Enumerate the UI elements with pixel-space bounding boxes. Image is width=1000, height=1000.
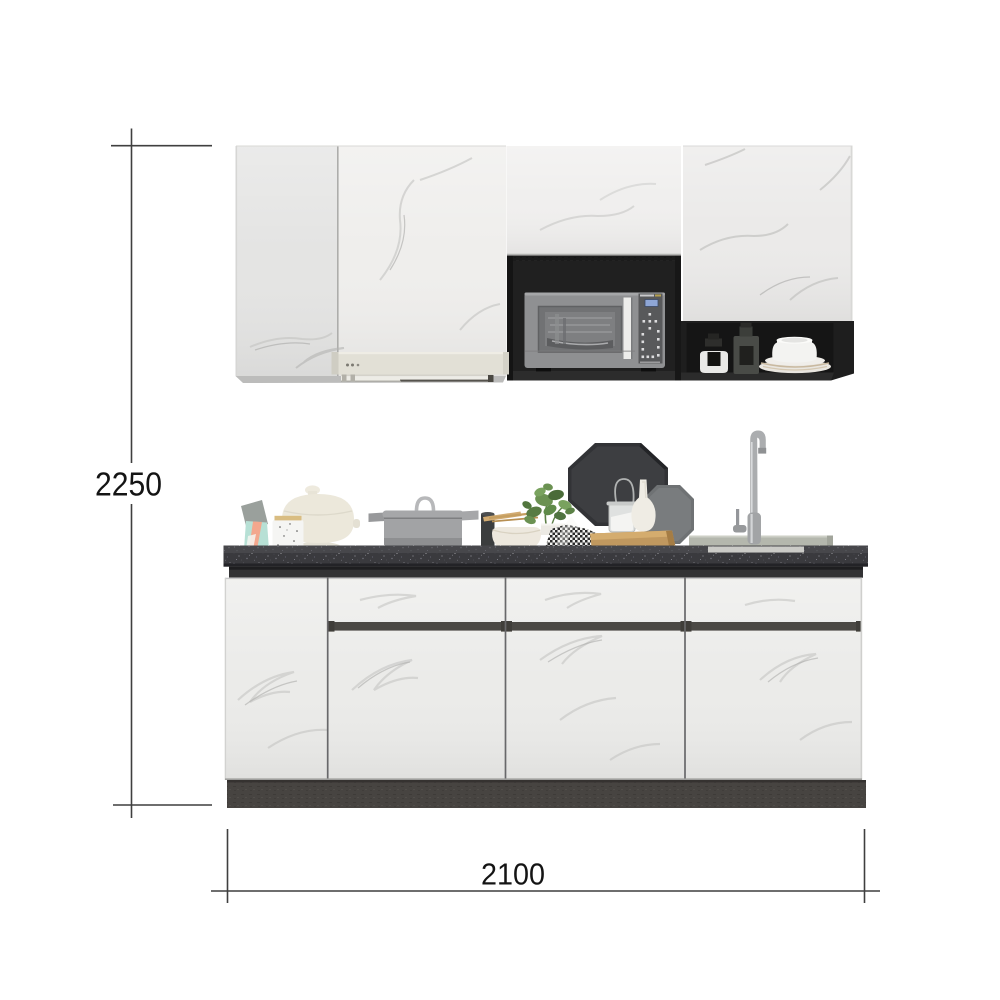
svg-text:2250: 2250: [95, 466, 162, 503]
svg-text:2100: 2100: [481, 857, 545, 892]
